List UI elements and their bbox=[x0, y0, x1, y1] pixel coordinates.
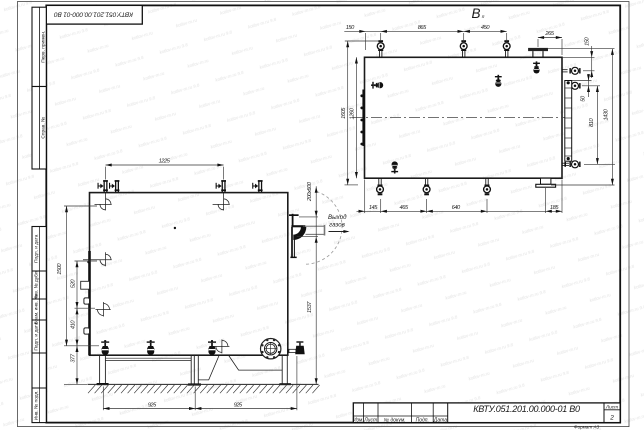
svg-text:№ докум.: № докум. bbox=[384, 417, 406, 423]
svg-text:925: 925 bbox=[234, 402, 243, 408]
svg-text:150: 150 bbox=[346, 25, 355, 31]
svg-text:1500: 1500 bbox=[57, 263, 63, 275]
svg-text:465: 465 bbox=[400, 205, 409, 211]
svg-text:Взам. инв. №: Взам. инв. № bbox=[33, 295, 39, 325]
svg-text:Формат А3: Формат А3 bbox=[574, 424, 600, 429]
svg-text:1605: 1605 bbox=[341, 107, 347, 119]
svg-text:185: 185 bbox=[550, 205, 559, 211]
svg-text:377: 377 bbox=[71, 353, 77, 362]
svg-text:450: 450 bbox=[481, 25, 490, 31]
svg-text:410: 410 bbox=[71, 320, 77, 329]
svg-text:Дата: Дата bbox=[433, 417, 447, 423]
svg-text:925: 925 bbox=[148, 402, 157, 408]
svg-text:810: 810 bbox=[589, 118, 595, 127]
svg-text:2: 2 bbox=[609, 414, 614, 421]
svg-text:640: 640 bbox=[452, 205, 461, 211]
svg-text:1430: 1430 bbox=[603, 108, 609, 120]
svg-text:КВТУ.051.201.00.000-01 В0: КВТУ.051.201.00.000-01 В0 bbox=[54, 10, 133, 17]
svg-text:1537: 1537 bbox=[307, 301, 313, 313]
svg-text:150: 150 bbox=[585, 36, 591, 45]
svg-text:Выход: Выход bbox=[328, 214, 347, 221]
svg-text:520: 520 bbox=[71, 279, 77, 288]
svg-text:газов: газов bbox=[329, 222, 346, 229]
svg-text:п: п bbox=[482, 15, 485, 20]
svg-text:Перв. примен.: Перв. примен. bbox=[40, 31, 46, 63]
svg-text:Справ. №: Справ. № bbox=[40, 117, 46, 139]
svg-text:В: В bbox=[472, 6, 481, 21]
svg-text:Подп. и дата: Подп. и дата bbox=[33, 234, 39, 263]
svg-text:865: 865 bbox=[418, 25, 427, 31]
svg-text:145: 145 bbox=[369, 205, 378, 211]
svg-text:Лист: Лист bbox=[363, 417, 377, 423]
svg-text:200х600: 200х600 bbox=[307, 181, 313, 202]
svg-text:1225: 1225 bbox=[159, 159, 171, 165]
svg-text:Изм.: Изм. bbox=[353, 417, 364, 423]
svg-text:1260: 1260 bbox=[350, 107, 356, 119]
svg-text:265: 265 bbox=[544, 31, 554, 37]
svg-text:КВТУ.051.201.00.000-01 В0: КВТУ.051.201.00.000-01 В0 bbox=[473, 404, 580, 414]
svg-text:Подп.: Подп. bbox=[416, 417, 429, 423]
svg-text:Инв. № подл.: Инв. № подл. bbox=[33, 390, 39, 420]
svg-text:Лист: Лист bbox=[605, 404, 618, 410]
svg-text:Подп. и дата: Подп. и дата bbox=[33, 322, 39, 351]
